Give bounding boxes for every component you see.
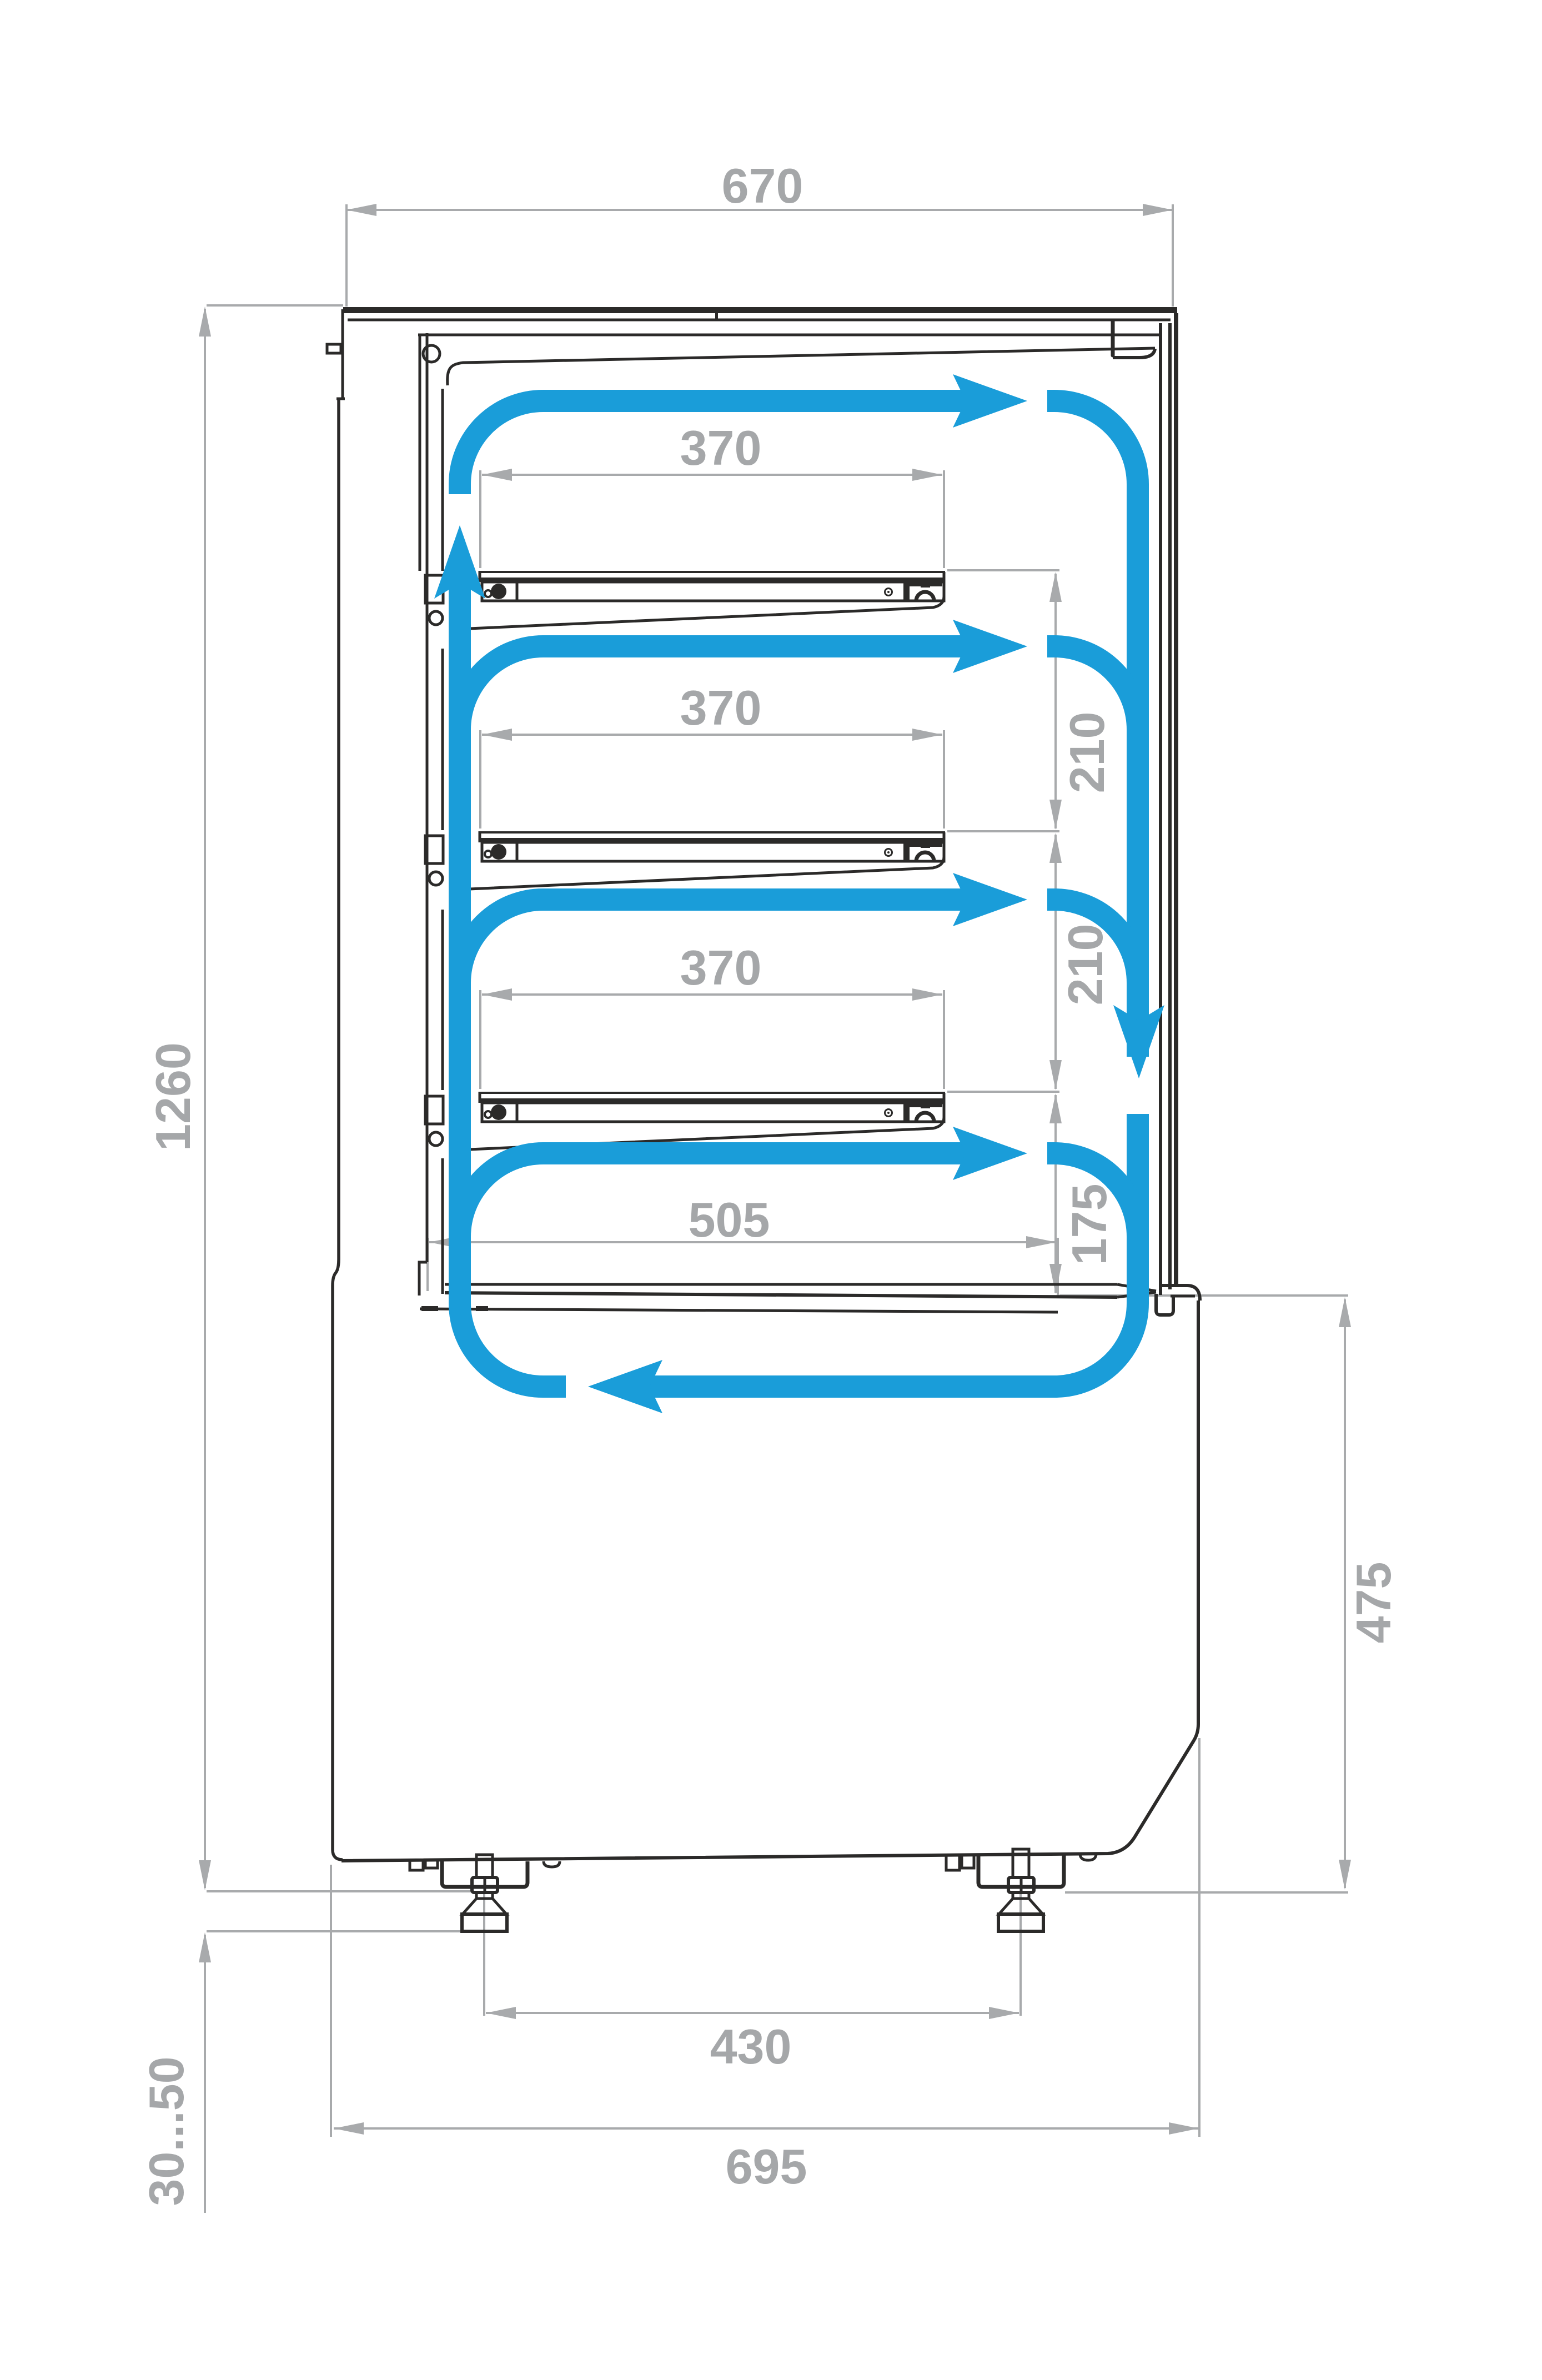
svg-text:210: 210 <box>1058 924 1113 1006</box>
svg-text:1260: 1260 <box>145 1042 200 1151</box>
svg-text:175: 175 <box>1062 1184 1117 1266</box>
svg-text:30...50: 30...50 <box>139 2056 194 2206</box>
svg-text:370: 370 <box>680 940 762 995</box>
svg-text:210: 210 <box>1059 712 1114 794</box>
svg-text:695: 695 <box>726 2139 807 2194</box>
svg-text:370: 370 <box>680 420 762 475</box>
svg-text:670: 670 <box>722 158 803 213</box>
svg-text:430: 430 <box>710 2019 792 2074</box>
svg-text:475: 475 <box>1346 1562 1401 1644</box>
svg-text:370: 370 <box>680 680 762 735</box>
svg-text:505: 505 <box>689 1192 770 1247</box>
